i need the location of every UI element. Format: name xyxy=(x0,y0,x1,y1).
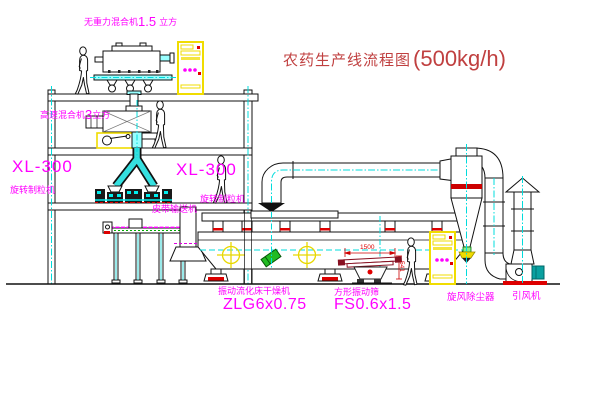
fan-label: 引风机 xyxy=(512,292,541,302)
control-cabinet-bottom xyxy=(430,232,455,284)
sieve-height-dimension: 541 xyxy=(398,261,405,272)
control-cabinet-top xyxy=(178,42,203,94)
person-second-floor xyxy=(152,101,166,148)
title-capacity: (500kg/h) xyxy=(413,46,506,72)
gravity-mixer-label: 无重力混合机1.5立方 xyxy=(84,15,177,28)
title-text: 农药生产线流程图 xyxy=(283,49,411,70)
process-flow-diagram: 农药生产线流程图 (500kg/h) 无重力混合机1.5立方 高速混合机3立方 … xyxy=(0,0,600,403)
person-top-floor xyxy=(75,47,89,94)
sieve-length-dimension: 1500 xyxy=(360,245,374,252)
sieve-model-label: FS0.6x1.5 xyxy=(334,297,411,313)
belt-conveyor-label: 皮带输送机 xyxy=(152,205,197,214)
induced-draft-fan xyxy=(503,176,547,285)
dryer-name-label: 振动流化床干燥机 xyxy=(218,287,290,296)
high-speed-mixer-label: 高速混合机3立方 xyxy=(40,108,110,121)
cyclone-label: 旋风除尘器 xyxy=(447,293,495,303)
granulator-left-model: XL-300 xyxy=(12,158,73,175)
granulator-right-model: XL-300 xyxy=(176,161,237,178)
granulator-left-name: 旋转制粒机 xyxy=(10,186,55,195)
granulator-right-name: 旋转制粒机 xyxy=(200,195,245,204)
fluid-bed-dryer xyxy=(198,210,466,284)
granulator-left xyxy=(95,186,135,203)
dryer-model-label: ZLG6x0.75 xyxy=(223,297,307,313)
diagram-title: 农药生产线流程图 (500kg/h) xyxy=(283,46,506,72)
granulator-right xyxy=(132,186,172,203)
